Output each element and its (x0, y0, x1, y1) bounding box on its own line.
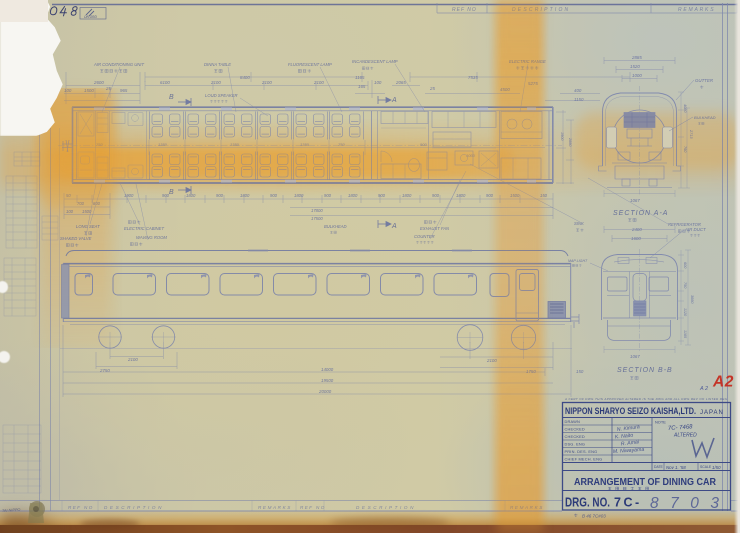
svg-text:A2: A2 (712, 374, 734, 391)
svg-text:2100: 2100 (486, 358, 497, 363)
svg-text:2400: 2400 (631, 227, 642, 232)
svg-text:M. Niwayama: M. Niwayama (613, 447, 645, 455)
svg-text:JAPAN: JAPAN (700, 410, 724, 416)
svg-text:A: A (391, 223, 397, 230)
svg-text:REF NO: REF NO (452, 7, 477, 13)
svg-text:165: 165 (358, 84, 366, 89)
svg-text:25: 25 (429, 86, 435, 91)
svg-text:PRIN. DES. ENG: PRIN. DES. ENG (565, 449, 598, 454)
svg-text:2885: 2885 (631, 55, 642, 60)
svg-text:1800: 1800 (348, 193, 358, 198)
svg-text:A: A (391, 97, 397, 104)
svg-text:1800: 1800 (294, 193, 304, 198)
svg-text:AIR CONDITIONING UNIT: AIR CONDITIONING UNIT (93, 62, 144, 67)
svg-text:EXHAUST FAN: EXHAUST FAN (420, 226, 450, 231)
svg-text:100: 100 (374, 80, 382, 85)
svg-text:B: B (169, 189, 174, 196)
svg-text:AIR DUCT: AIR DUCT (684, 227, 706, 232)
svg-text:NIPPON SHARYO SEIZO KAISHA,LTD: NIPPON SHARYO SEIZO KAISHA,LTD. (565, 406, 696, 417)
svg-text:900: 900 (324, 193, 332, 198)
svg-text:REMARKS: REMARKS (678, 7, 715, 13)
svg-text:2100: 2100 (261, 80, 272, 85)
svg-text:DRG. NO.: DRG. NO. (565, 496, 610, 510)
svg-text:COUNTER: COUNTER (414, 234, 435, 239)
svg-text:ON ORD: ON ORD (84, 15, 97, 19)
svg-text:A 2: A 2 (699, 386, 708, 392)
svg-text:1800: 1800 (456, 193, 466, 198)
svg-text:REF NO: REF NO (68, 505, 94, 510)
svg-text:965: 965 (120, 88, 128, 93)
svg-text:1067: 1067 (630, 198, 640, 203)
svg-text:1000: 1000 (632, 73, 642, 78)
svg-text:DSG. ENG: DSG. ENG (565, 442, 586, 447)
svg-text:1600: 1600 (631, 236, 641, 241)
svg-text:ARRANGEMENT OF DINING CAR: ARRANGEMENT OF DINING CAR (574, 477, 717, 488)
svg-text:2713: 2713 (689, 129, 693, 139)
svg-text:1/50: 1/50 (712, 465, 721, 470)
svg-text:SINK: SINK (574, 221, 584, 226)
svg-text:19500: 19500 (321, 378, 334, 383)
svg-text:7C- 7468: 7C- 7468 (668, 424, 694, 432)
svg-text:1800: 1800 (402, 193, 412, 198)
svg-text:CHECKED: CHECKED (565, 427, 585, 432)
svg-text:1800: 1800 (186, 193, 196, 198)
svg-text:7535: 7535 (468, 75, 478, 80)
svg-text:8703: 8703 (650, 495, 730, 512)
svg-text:TAI NIPPO: TAI NIPPO (2, 508, 21, 513)
svg-text:DATE: DATE (654, 465, 664, 469)
svg-text:6100: 6100 (160, 80, 170, 85)
svg-text:1520: 1520 (630, 64, 640, 69)
svg-text:CHIEF MECH. ENG: CHIEF MECH. ENG (565, 457, 603, 462)
svg-text:900: 900 (378, 193, 386, 198)
svg-text:SCALE: SCALE (700, 465, 712, 469)
svg-text:2880: 2880 (568, 137, 572, 147)
svg-text:4080: 4080 (683, 104, 687, 113)
svg-text:17500: 17500 (311, 216, 323, 221)
svg-text:400: 400 (574, 88, 582, 93)
svg-text:20000: 20000 (318, 389, 332, 394)
svg-text:SHAKED VALVE: SHAKED VALVE (60, 236, 92, 241)
svg-text:A CERT OF DWG THIS APPROVED AL: A CERT OF DWG THIS APPROVED ALTERED IS T… (564, 397, 728, 401)
svg-text:2600: 2600 (93, 80, 104, 85)
svg-text:SECTION A-A: SECTION A-A (613, 210, 668, 217)
svg-text:DRAWN: DRAWN (565, 419, 581, 424)
svg-text:BULKHEAD: BULKHEAD (694, 115, 716, 120)
svg-text:DESCRIPTION: DESCRIPTION (356, 505, 416, 510)
svg-text:REMARKS: REMARKS (258, 505, 292, 510)
svg-text:3880: 3880 (690, 295, 694, 304)
svg-text:1900: 1900 (560, 132, 564, 141)
svg-text:B 46 7C#03: B 46 7C#03 (582, 514, 606, 519)
svg-text:750: 750 (683, 282, 687, 289)
svg-text:WAVING ROOM: WAVING ROOM (136, 235, 167, 240)
svg-text:MAP LIGHT: MAP LIGHT (568, 259, 588, 263)
svg-text:N. Kimura: N. Kimura (617, 424, 641, 433)
svg-text:CHECKED: CHECKED (565, 434, 585, 439)
svg-text:14000: 14000 (321, 367, 334, 372)
svg-text:900: 900 (270, 193, 278, 198)
svg-text:2100: 2100 (127, 357, 138, 362)
svg-text:ELECTRIC CABINET: ELECTRIC CABINET (124, 226, 164, 231)
svg-text:2065: 2065 (395, 80, 406, 85)
svg-text:1150: 1150 (574, 97, 584, 102)
svg-text:1120: 1120 (683, 308, 687, 317)
svg-text:INCANDESCENT LAMP: INCANDESCENT LAMP (352, 59, 398, 64)
svg-text:100: 100 (66, 209, 74, 214)
svg-text:1185: 1185 (683, 330, 687, 339)
svg-text:Nov 1. '58: Nov 1. '58 (666, 465, 686, 470)
svg-text:1900: 1900 (124, 193, 134, 198)
svg-text:17800: 17800 (311, 208, 323, 213)
svg-text:1165: 1165 (355, 75, 365, 80)
svg-text:2100: 2100 (313, 80, 324, 85)
svg-text:2100: 2100 (210, 80, 221, 85)
svg-text:900: 900 (162, 193, 170, 198)
svg-text:1067: 1067 (630, 354, 640, 359)
svg-text:GUTTER: GUTTER (695, 78, 714, 83)
svg-text:ALTERED: ALTERED (673, 433, 697, 439)
svg-text:600: 600 (683, 262, 687, 269)
svg-text:900: 900 (432, 193, 440, 198)
svg-text:1800: 1800 (240, 193, 250, 198)
svg-text:R. Amai: R. Amai (621, 439, 641, 447)
svg-text:900: 900 (216, 193, 224, 198)
svg-text:8400: 8400 (240, 75, 250, 80)
svg-text:FLUORESCENT LAMP: FLUORESCENT LAMP (288, 62, 332, 67)
svg-text:2750: 2750 (99, 368, 110, 373)
svg-text:NOTE: NOTE (655, 420, 666, 425)
svg-text:760: 760 (683, 146, 687, 153)
svg-text:150: 150 (576, 369, 584, 374)
svg-text:SECTION B-B: SECTION B-B (617, 367, 673, 374)
svg-text:REF NO: REF NO (300, 505, 326, 510)
svg-text:DESCRIPTION: DESCRIPTION (104, 505, 164, 510)
svg-text:BULKHEAD: BULKHEAD (324, 224, 347, 229)
svg-text:900: 900 (486, 193, 494, 198)
svg-text:DINNA TABLE: DINNA TABLE (204, 62, 231, 67)
svg-text:B: B (169, 94, 174, 101)
svg-text:7C-: 7C- (614, 496, 642, 510)
